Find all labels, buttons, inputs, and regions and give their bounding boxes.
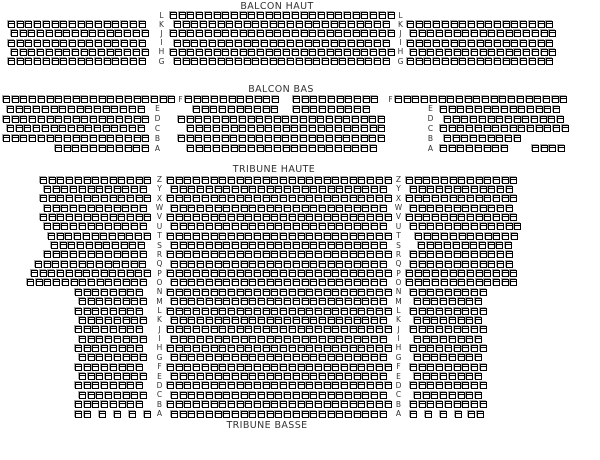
seat[interactable] xyxy=(73,96,80,103)
seat[interactable] xyxy=(432,214,439,221)
seat[interactable] xyxy=(319,242,326,249)
seat[interactable] xyxy=(219,326,226,333)
seat[interactable] xyxy=(254,401,261,408)
seat[interactable] xyxy=(183,21,190,28)
seat[interactable] xyxy=(453,135,460,142)
seat[interactable] xyxy=(503,40,510,47)
seat[interactable] xyxy=(462,364,469,371)
seat[interactable] xyxy=(317,116,324,123)
seat[interactable] xyxy=(280,308,287,315)
seat[interactable] xyxy=(180,373,187,380)
seat[interactable] xyxy=(70,205,77,212)
seat[interactable] xyxy=(497,261,504,268)
seat[interactable] xyxy=(458,392,465,399)
seat[interactable] xyxy=(125,116,132,123)
seat[interactable] xyxy=(245,308,252,315)
seat[interactable] xyxy=(410,411,417,418)
seat[interactable] xyxy=(197,205,204,212)
seat[interactable] xyxy=(88,205,95,212)
seat[interactable] xyxy=(324,214,331,221)
seat[interactable] xyxy=(81,96,88,103)
seat[interactable] xyxy=(354,261,361,268)
seat[interactable] xyxy=(531,116,538,123)
seat[interactable] xyxy=(252,21,259,28)
seat[interactable] xyxy=(44,205,51,212)
seat[interactable] xyxy=(510,195,517,202)
seat[interactable] xyxy=(267,298,274,305)
seat[interactable] xyxy=(410,49,417,56)
seat[interactable] xyxy=(16,125,23,132)
seat[interactable] xyxy=(301,12,308,19)
seat[interactable] xyxy=(459,21,466,28)
seat[interactable] xyxy=(298,308,305,315)
seat[interactable] xyxy=(484,214,491,221)
seat[interactable] xyxy=(466,145,473,152)
seat[interactable] xyxy=(480,261,487,268)
seat[interactable] xyxy=(191,58,198,65)
seat[interactable] xyxy=(206,317,213,324)
seat[interactable] xyxy=(471,345,478,352)
seat[interactable] xyxy=(188,336,195,343)
seat[interactable] xyxy=(75,289,82,296)
seat[interactable] xyxy=(105,336,112,343)
seat[interactable] xyxy=(493,233,500,240)
seat[interactable] xyxy=(305,58,312,65)
seat[interactable] xyxy=(121,242,128,249)
seat[interactable] xyxy=(84,177,91,184)
seat[interactable] xyxy=(451,58,458,65)
seat[interactable] xyxy=(123,298,130,305)
seat[interactable] xyxy=(176,401,183,408)
seat[interactable] xyxy=(258,354,265,361)
seat[interactable] xyxy=(202,195,209,202)
seat[interactable] xyxy=(306,177,313,184)
seat[interactable] xyxy=(419,345,426,352)
seat[interactable] xyxy=(196,125,203,132)
seat[interactable] xyxy=(118,214,125,221)
seat[interactable] xyxy=(418,242,425,249)
seat[interactable] xyxy=(275,336,282,343)
seat[interactable] xyxy=(265,116,272,123)
seat[interactable] xyxy=(44,186,51,193)
seat[interactable] xyxy=(73,116,80,123)
seat[interactable] xyxy=(358,214,365,221)
seat[interactable] xyxy=(33,106,40,113)
seat[interactable] xyxy=(341,308,348,315)
seat[interactable] xyxy=(263,106,270,113)
seat[interactable] xyxy=(343,116,350,123)
seat[interactable] xyxy=(218,40,225,47)
seat[interactable] xyxy=(256,116,263,123)
seat[interactable] xyxy=(275,373,282,380)
seat[interactable] xyxy=(451,40,458,47)
seat[interactable] xyxy=(232,354,239,361)
seat[interactable] xyxy=(529,58,536,65)
seat[interactable] xyxy=(274,49,281,56)
seat[interactable] xyxy=(202,345,209,352)
seat[interactable] xyxy=(92,308,99,315)
seat[interactable] xyxy=(107,30,114,37)
seat[interactable] xyxy=(228,382,235,389)
seat[interactable] xyxy=(131,186,138,193)
seat[interactable] xyxy=(341,382,348,389)
seat[interactable] xyxy=(71,279,78,286)
seat[interactable] xyxy=(197,223,204,230)
seat[interactable] xyxy=(126,233,133,240)
seat[interactable] xyxy=(29,96,36,103)
seat[interactable] xyxy=(254,233,261,240)
seat[interactable] xyxy=(211,382,218,389)
seat[interactable] xyxy=(40,195,47,202)
seat[interactable] xyxy=(494,40,501,47)
seat[interactable] xyxy=(69,21,76,28)
seat[interactable] xyxy=(302,317,309,324)
seat[interactable] xyxy=(541,30,548,37)
seat[interactable] xyxy=(414,392,421,399)
seat[interactable] xyxy=(206,298,213,305)
seat[interactable] xyxy=(380,279,387,286)
seat[interactable] xyxy=(119,289,126,296)
seat[interactable] xyxy=(350,270,357,277)
seat[interactable] xyxy=(47,116,54,123)
seat[interactable] xyxy=(439,96,446,103)
seat[interactable] xyxy=(354,186,361,193)
seat[interactable] xyxy=(249,373,256,380)
seat[interactable] xyxy=(275,186,282,193)
seat[interactable] xyxy=(458,373,465,380)
seat[interactable] xyxy=(388,12,395,19)
seat[interactable] xyxy=(229,96,236,103)
seat[interactable] xyxy=(81,49,88,56)
seat[interactable] xyxy=(85,125,92,132)
seat[interactable] xyxy=(335,145,342,152)
seat[interactable] xyxy=(204,125,211,132)
seat[interactable] xyxy=(506,223,513,230)
seat[interactable] xyxy=(462,401,469,408)
seat[interactable] xyxy=(127,177,134,184)
seat[interactable] xyxy=(78,21,85,28)
seat[interactable] xyxy=(336,242,343,249)
seat[interactable] xyxy=(184,270,191,277)
seat[interactable] xyxy=(249,261,256,268)
seat[interactable] xyxy=(206,261,213,268)
seat[interactable] xyxy=(184,289,191,296)
seat[interactable] xyxy=(241,373,248,380)
seat[interactable] xyxy=(267,373,274,380)
seat[interactable] xyxy=(219,214,226,221)
seat[interactable] xyxy=(245,382,252,389)
seat[interactable] xyxy=(322,40,329,47)
seat[interactable] xyxy=(176,195,183,202)
seat[interactable] xyxy=(475,392,482,399)
seat[interactable] xyxy=(202,106,209,113)
seat[interactable] xyxy=(249,317,256,324)
seat[interactable] xyxy=(298,382,305,389)
seat[interactable] xyxy=(485,21,492,28)
seat[interactable] xyxy=(237,382,244,389)
seat[interactable] xyxy=(53,223,60,230)
seat[interactable] xyxy=(200,40,207,47)
seat[interactable] xyxy=(258,261,265,268)
seat[interactable] xyxy=(254,214,261,221)
seat[interactable] xyxy=(406,214,413,221)
seat[interactable] xyxy=(383,58,390,65)
seat[interactable] xyxy=(449,298,456,305)
seat[interactable] xyxy=(263,214,270,221)
seat[interactable] xyxy=(518,125,525,132)
seat[interactable] xyxy=(306,251,313,258)
seat[interactable] xyxy=(492,106,499,113)
seat[interactable] xyxy=(70,223,77,230)
seat[interactable] xyxy=(187,135,194,142)
seat[interactable] xyxy=(110,401,117,408)
seat[interactable] xyxy=(140,354,147,361)
seat[interactable] xyxy=(43,58,50,65)
seat[interactable] xyxy=(296,40,303,47)
seat[interactable] xyxy=(211,326,218,333)
seat[interactable] xyxy=(459,233,466,240)
seat[interactable] xyxy=(241,411,248,418)
seat[interactable] xyxy=(197,242,204,249)
seat[interactable] xyxy=(188,298,195,305)
seat[interactable] xyxy=(332,326,339,333)
seat[interactable] xyxy=(292,12,299,19)
seat[interactable] xyxy=(237,308,244,315)
seat[interactable] xyxy=(354,373,361,380)
seat[interactable] xyxy=(60,40,67,47)
seat[interactable] xyxy=(362,223,369,230)
seat[interactable] xyxy=(114,317,121,324)
seat[interactable] xyxy=(318,30,325,37)
seat[interactable] xyxy=(449,106,456,113)
seat[interactable] xyxy=(244,40,251,47)
seat[interactable] xyxy=(195,116,202,123)
seat[interactable] xyxy=(3,135,10,142)
seat[interactable] xyxy=(219,251,226,258)
seat[interactable] xyxy=(354,392,361,399)
seat[interactable] xyxy=(105,392,112,399)
seat[interactable] xyxy=(423,392,430,399)
seat[interactable] xyxy=(293,242,300,249)
seat[interactable] xyxy=(140,205,147,212)
seat[interactable] xyxy=(193,345,200,352)
seat[interactable] xyxy=(502,214,509,221)
seat[interactable] xyxy=(508,96,515,103)
seat[interactable] xyxy=(332,270,339,277)
seat[interactable] xyxy=(326,135,333,142)
seat[interactable] xyxy=(315,308,322,315)
seat[interactable] xyxy=(496,116,503,123)
seat[interactable] xyxy=(471,326,478,333)
seat[interactable] xyxy=(484,106,491,113)
seat[interactable] xyxy=(266,12,273,19)
seat[interactable] xyxy=(480,326,487,333)
seat[interactable] xyxy=(278,21,285,28)
seat[interactable] xyxy=(257,49,264,56)
seat[interactable] xyxy=(92,195,99,202)
seat[interactable] xyxy=(248,30,255,37)
seat[interactable] xyxy=(419,326,426,333)
seat[interactable] xyxy=(232,392,239,399)
seat[interactable] xyxy=(101,326,108,333)
seat[interactable] xyxy=(75,382,82,389)
seat[interactable] xyxy=(232,373,239,380)
seat[interactable] xyxy=(562,125,569,132)
seat[interactable] xyxy=(458,177,465,184)
seat[interactable] xyxy=(11,49,18,56)
seat[interactable] xyxy=(441,279,448,286)
seat[interactable] xyxy=(275,392,282,399)
seat[interactable] xyxy=(306,195,313,202)
seat[interactable] xyxy=(258,186,265,193)
seat[interactable] xyxy=(267,279,274,286)
seat[interactable] xyxy=(445,30,452,37)
seat[interactable] xyxy=(427,30,434,37)
seat[interactable] xyxy=(171,279,178,286)
seat[interactable] xyxy=(442,21,449,28)
seat[interactable] xyxy=(445,261,452,268)
seat[interactable] xyxy=(289,289,296,296)
seat[interactable] xyxy=(494,21,501,28)
seat[interactable] xyxy=(130,40,137,47)
seat[interactable] xyxy=(257,12,264,19)
seat[interactable] xyxy=(135,233,142,240)
seat[interactable] xyxy=(328,261,335,268)
seat[interactable] xyxy=(112,21,119,28)
seat[interactable] xyxy=(79,317,86,324)
seat[interactable] xyxy=(180,392,187,399)
seat[interactable] xyxy=(136,289,143,296)
seat[interactable] xyxy=(244,58,251,65)
seat[interactable] xyxy=(245,364,252,371)
seat[interactable] xyxy=(202,401,209,408)
seat[interactable] xyxy=(123,354,130,361)
seat[interactable] xyxy=(358,326,365,333)
seat[interactable] xyxy=(302,373,309,380)
seat[interactable] xyxy=(328,411,335,418)
seat[interactable] xyxy=(454,401,461,408)
seat[interactable] xyxy=(458,317,465,324)
seat[interactable] xyxy=(193,270,200,277)
seat[interactable] xyxy=(142,96,149,103)
seat[interactable] xyxy=(365,40,372,47)
seat[interactable] xyxy=(440,392,447,399)
seat[interactable] xyxy=(362,373,369,380)
seat[interactable] xyxy=(257,125,264,132)
seat[interactable] xyxy=(28,30,35,37)
seat[interactable] xyxy=(171,373,178,380)
seat[interactable] xyxy=(275,279,282,286)
seat[interactable] xyxy=(310,205,317,212)
seat[interactable] xyxy=(414,373,421,380)
seat[interactable] xyxy=(275,223,282,230)
seat[interactable] xyxy=(510,279,517,286)
seat[interactable] xyxy=(440,106,447,113)
seat[interactable] xyxy=(379,49,386,56)
seat[interactable] xyxy=(510,106,517,113)
seat[interactable] xyxy=(493,270,500,277)
seat[interactable] xyxy=(341,326,348,333)
seat[interactable] xyxy=(20,116,27,123)
seat[interactable] xyxy=(313,21,320,28)
seat[interactable] xyxy=(123,279,130,286)
seat[interactable] xyxy=(326,116,333,123)
seat[interactable] xyxy=(427,308,434,315)
seat[interactable] xyxy=(105,373,112,380)
seat[interactable] xyxy=(197,317,204,324)
seat[interactable] xyxy=(131,336,138,343)
seat[interactable] xyxy=(105,261,112,268)
seat[interactable] xyxy=(104,40,111,47)
seat[interactable] xyxy=(193,326,200,333)
seat[interactable] xyxy=(468,40,475,47)
seat[interactable] xyxy=(441,177,448,184)
seat[interactable] xyxy=(105,223,112,230)
seat[interactable] xyxy=(496,135,503,142)
seat[interactable] xyxy=(193,289,200,296)
seat[interactable] xyxy=(24,106,31,113)
seat[interactable] xyxy=(249,186,256,193)
seat[interactable] xyxy=(532,30,539,37)
seat[interactable] xyxy=(73,135,80,142)
seat[interactable] xyxy=(211,345,218,352)
seat[interactable] xyxy=(235,58,242,65)
seat[interactable] xyxy=(358,364,365,371)
seat[interactable] xyxy=(488,223,495,230)
seat[interactable] xyxy=(218,21,225,28)
seat[interactable] xyxy=(480,289,487,296)
seat[interactable] xyxy=(442,58,449,65)
seat[interactable] xyxy=(302,411,309,418)
seat[interactable] xyxy=(283,145,290,152)
seat[interactable] xyxy=(202,251,209,258)
seat[interactable] xyxy=(134,135,141,142)
seat[interactable] xyxy=(289,251,296,258)
seat[interactable] xyxy=(432,233,439,240)
seat[interactable] xyxy=(467,270,474,277)
seat[interactable] xyxy=(88,317,95,324)
seat[interactable] xyxy=(44,261,51,268)
seat[interactable] xyxy=(196,145,203,152)
seat[interactable] xyxy=(57,233,64,240)
seat[interactable] xyxy=(232,186,239,193)
seat[interactable] xyxy=(371,336,378,343)
seat[interactable] xyxy=(337,96,344,103)
seat[interactable] xyxy=(445,364,452,371)
seat[interactable] xyxy=(354,411,361,418)
seat[interactable] xyxy=(61,186,68,193)
seat[interactable] xyxy=(226,40,233,47)
seat[interactable] xyxy=(354,354,361,361)
seat[interactable] xyxy=(362,186,369,193)
seat[interactable] xyxy=(180,411,187,418)
seat[interactable] xyxy=(271,326,278,333)
seat[interactable] xyxy=(28,49,35,56)
seat[interactable] xyxy=(367,308,374,315)
seat[interactable] xyxy=(193,382,200,389)
seat[interactable] xyxy=(423,317,430,324)
seat[interactable] xyxy=(25,58,32,65)
seat[interactable] xyxy=(188,392,195,399)
seat[interactable] xyxy=(214,12,221,19)
seat[interactable] xyxy=(287,21,294,28)
seat[interactable] xyxy=(335,30,342,37)
seat[interactable] xyxy=(454,345,461,352)
seat[interactable] xyxy=(222,125,229,132)
seat[interactable] xyxy=(248,12,255,19)
seat[interactable] xyxy=(223,373,230,380)
seat[interactable] xyxy=(328,279,335,286)
